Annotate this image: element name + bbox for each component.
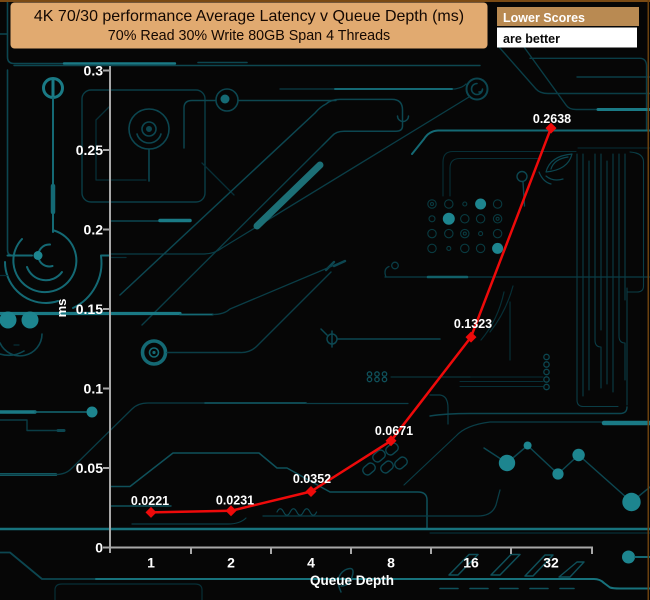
svg-text:0.1: 0.1 — [84, 381, 104, 397]
svg-text:0.25: 0.25 — [76, 142, 103, 158]
svg-text:16: 16 — [463, 555, 479, 571]
svg-text:70% Read 30% Write 80GB Span 4: 70% Read 30% Write 80GB Span 4 Threads — [108, 28, 390, 44]
svg-text:0.3: 0.3 — [84, 63, 104, 79]
svg-text:0: 0 — [95, 540, 103, 556]
svg-text:Queue Depth: Queue Depth — [310, 573, 394, 588]
svg-text:0.0231: 0.0231 — [216, 494, 254, 508]
svg-text:0.05: 0.05 — [76, 460, 103, 476]
svg-text:ms: ms — [54, 299, 69, 318]
svg-text:1: 1 — [147, 555, 155, 571]
svg-text:4: 4 — [307, 555, 315, 571]
svg-text:0.0221: 0.0221 — [131, 494, 169, 508]
svg-text:0.2: 0.2 — [84, 222, 104, 238]
svg-text:0.2638: 0.2638 — [533, 112, 571, 126]
svg-text:0.15: 0.15 — [76, 301, 103, 317]
svg-text:Lower Scores: Lower Scores — [503, 11, 585, 25]
svg-text:0.1323: 0.1323 — [454, 317, 492, 331]
svg-text:0.0352: 0.0352 — [293, 472, 331, 486]
svg-text:0.0671: 0.0671 — [375, 424, 413, 438]
svg-text:4K 70/30 performance Average L: 4K 70/30 performance Average Latency v Q… — [34, 8, 464, 25]
svg-text:8: 8 — [387, 555, 395, 571]
svg-text:32: 32 — [543, 555, 559, 571]
svg-text:are better: are better — [503, 32, 560, 46]
svg-text:2: 2 — [227, 555, 235, 571]
